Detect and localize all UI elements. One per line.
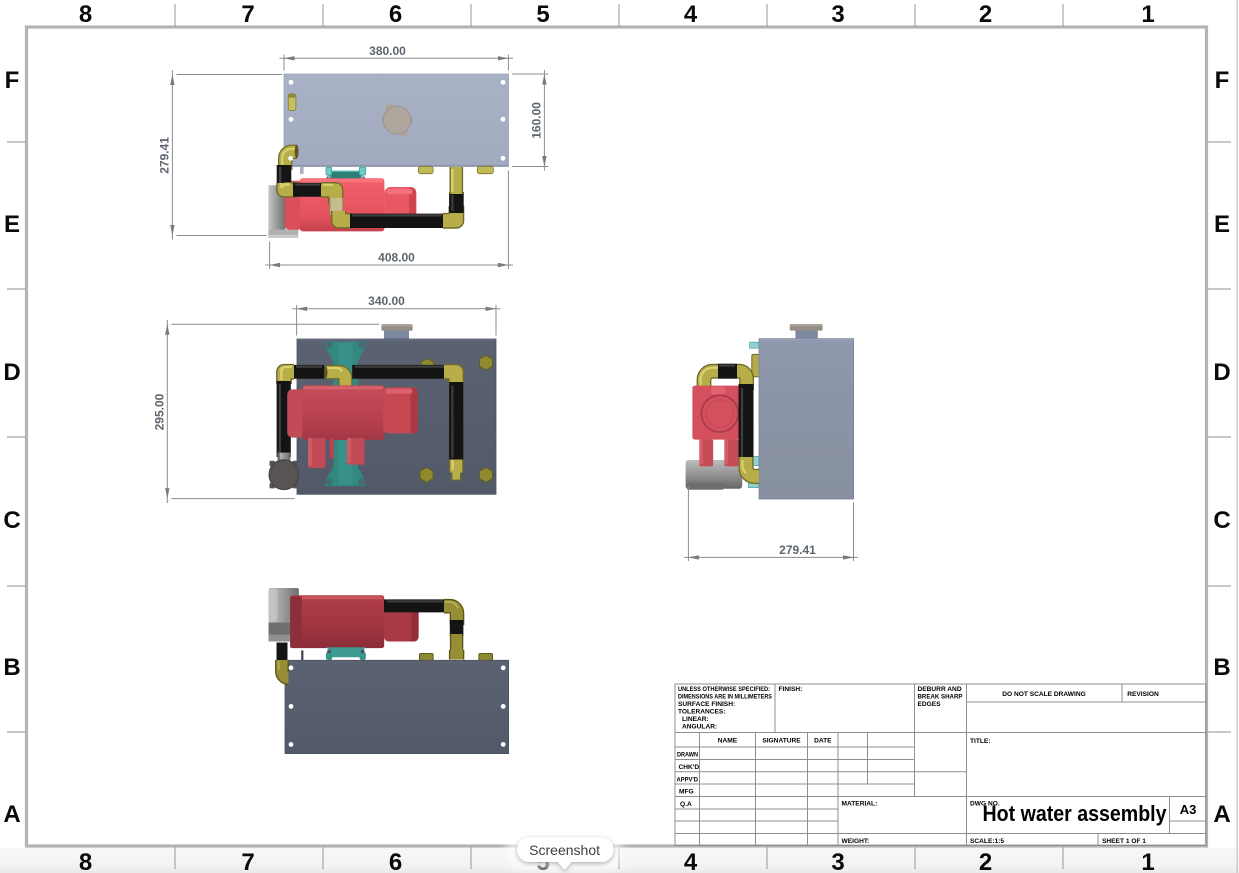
svg-text:C: C [3,507,20,534]
svg-text:7: 7 [241,849,254,873]
svg-text:6: 6 [389,1,402,28]
svg-text:REVISION: REVISION [1127,691,1159,698]
svg-text:4: 4 [684,849,698,873]
svg-text:1: 1 [1141,849,1154,873]
svg-text:MATERIAL:: MATERIAL: [842,801,878,808]
svg-text:FINISH:: FINISH: [779,686,803,693]
svg-text:TITLE:: TITLE: [970,738,991,745]
svg-text:DEBURR AND: DEBURR AND [918,686,962,693]
svg-text:4: 4 [684,1,698,28]
svg-text:2: 2 [979,1,992,28]
svg-text:D: D [1213,359,1230,386]
svg-text:A: A [3,801,20,828]
svg-text:7: 7 [241,1,254,28]
svg-text:UNLESS OTHERWISE SPECIFIED:: UNLESS OTHERWISE SPECIFIED: [678,686,770,693]
svg-text:1: 1 [1141,1,1154,28]
svg-text:E: E [1214,211,1230,238]
svg-text:5: 5 [536,1,549,28]
svg-text:A: A [1213,801,1230,828]
svg-text:SHEET 1 OF 1: SHEET 1 OF 1 [1102,838,1146,845]
svg-text:Hot water assembly: Hot water assembly [983,801,1167,826]
svg-text:279.41: 279.41 [779,543,816,557]
svg-text:279.41: 279.41 [157,137,171,174]
svg-text:LINEAR:: LINEAR: [682,716,709,723]
svg-text:380.00: 380.00 [369,44,406,58]
svg-text:F: F [1215,67,1230,94]
svg-text:A3: A3 [1180,802,1197,817]
svg-text:SIGNATURE: SIGNATURE [762,738,801,745]
svg-text:F: F [5,67,20,94]
svg-text:408.00: 408.00 [378,251,415,265]
svg-text:Q.A: Q.A [680,801,692,808]
svg-text:3: 3 [831,1,844,28]
svg-text:Screenshot: Screenshot [529,842,600,858]
svg-text:B: B [3,654,20,681]
svg-text:DO NOT SCALE DRAWING: DO NOT SCALE DRAWING [1002,691,1086,698]
svg-text:8: 8 [79,849,92,873]
svg-text:6: 6 [389,849,402,873]
svg-text:DIMENSIONS ARE IN MILLIMETERS: DIMENSIONS ARE IN MILLIMETERS [678,694,772,701]
svg-text:BREAK SHARP: BREAK SHARP [918,694,964,701]
svg-text:SURFACE FINISH:: SURFACE FINISH: [678,701,735,708]
svg-text:MFG: MFG [679,789,694,796]
svg-text:ANGULAR:: ANGULAR: [682,724,717,731]
svg-text:APPV'D: APPV'D [677,776,699,783]
svg-text:B: B [1213,654,1230,681]
svg-text:8: 8 [79,1,92,28]
svg-text:EDGES: EDGES [918,701,942,708]
svg-text:295.00: 295.00 [152,393,166,430]
svg-text:D: D [3,359,20,386]
svg-text:C: C [1213,507,1230,534]
svg-text:DATE: DATE [814,738,832,745]
svg-text:2: 2 [979,849,992,873]
svg-text:160.00: 160.00 [529,102,543,139]
svg-text:TOLERANCES:: TOLERANCES: [678,709,726,716]
svg-text:DRAWN: DRAWN [677,752,698,759]
svg-text:3: 3 [831,849,844,873]
svg-text:NAME: NAME [718,738,738,745]
svg-text:CHK'D: CHK'D [679,764,700,771]
svg-text:340.00: 340.00 [368,294,405,308]
svg-text:E: E [4,211,20,238]
svg-text:WEIGHT:: WEIGHT: [842,838,870,845]
svg-text:SCALE:1:5: SCALE:1:5 [970,838,1004,845]
